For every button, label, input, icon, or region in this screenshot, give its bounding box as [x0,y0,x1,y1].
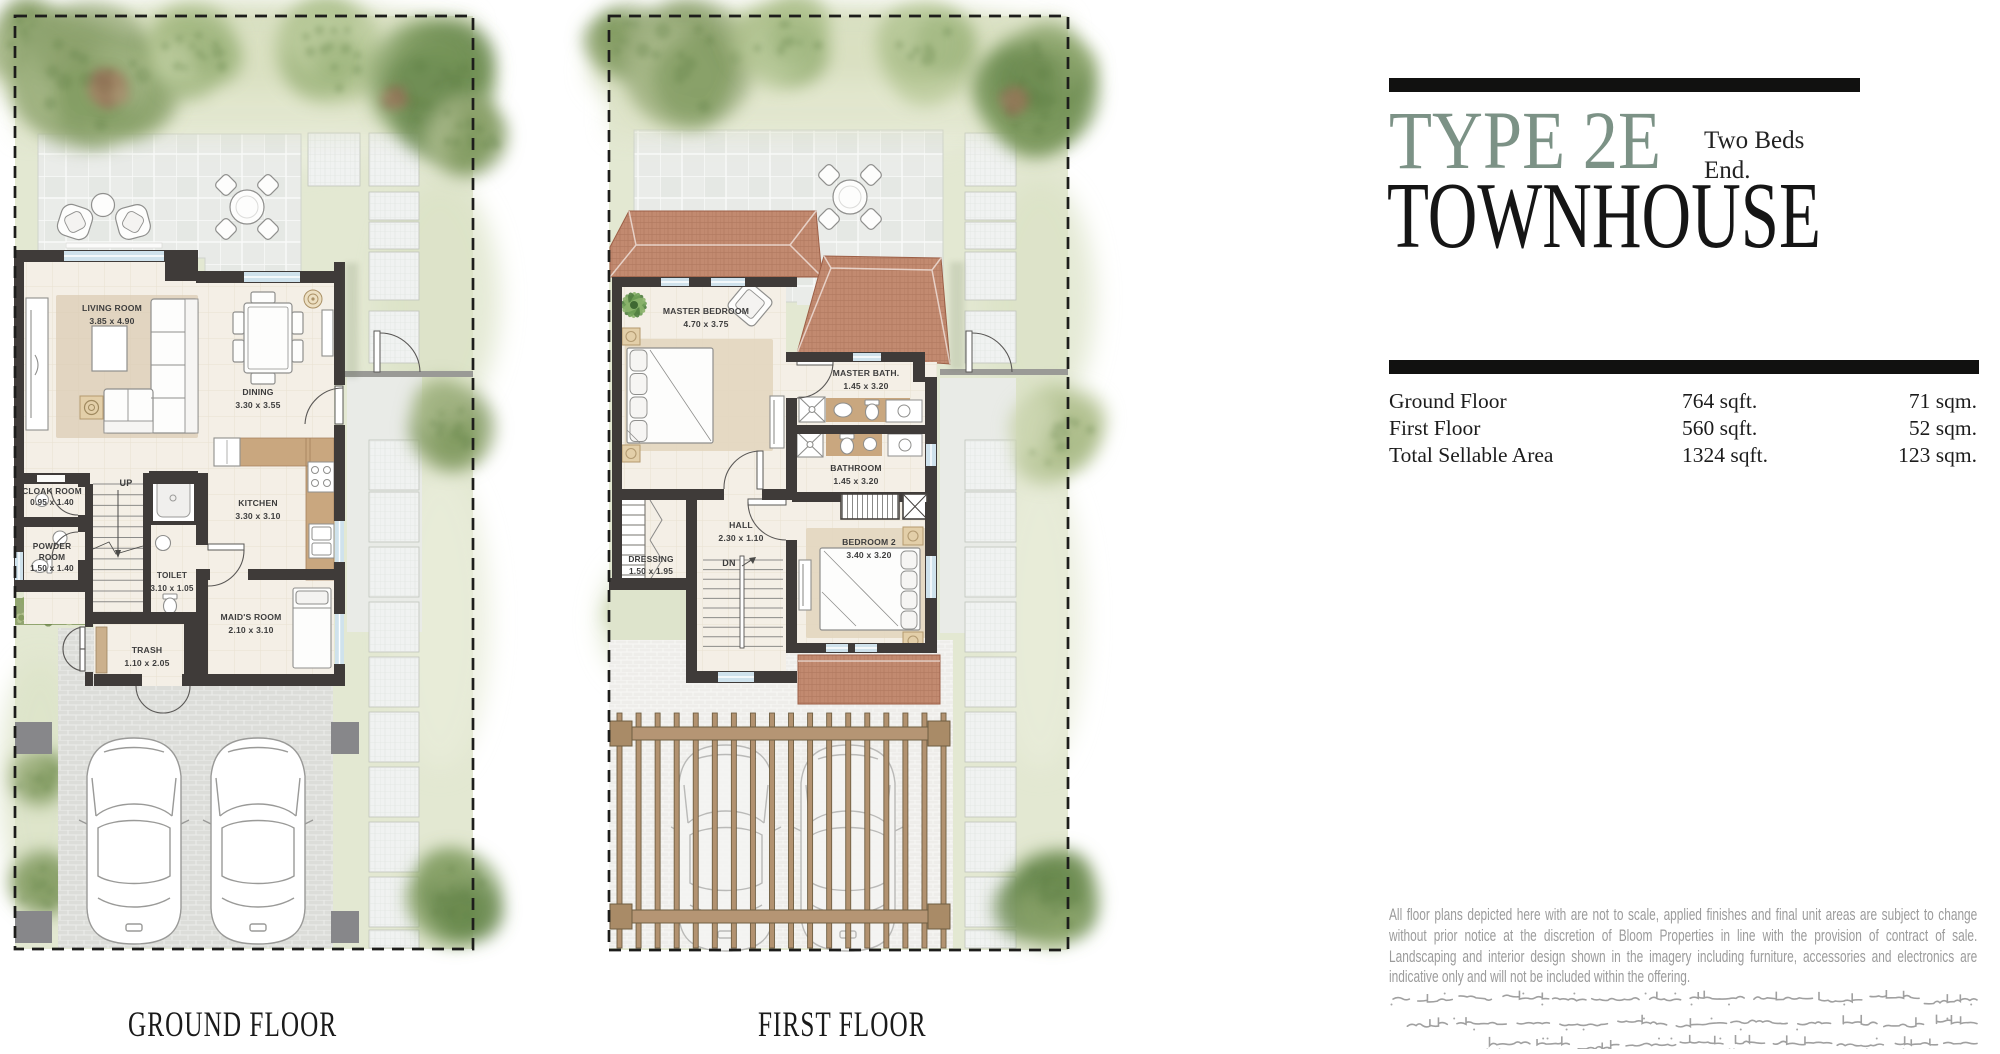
svg-text:1.45 x 3.20: 1.45 x 3.20 [843,381,888,391]
svg-text:1324 sqft.: 1324 sqft. [1682,443,1768,467]
svg-text:52 sqm.: 52 sqm. [1909,416,1977,440]
svg-text:BATHROOM: BATHROOM [830,463,882,473]
svg-text:1.10 x 2.05: 1.10 x 2.05 [124,658,169,668]
svg-text:LIVING ROOM: LIVING ROOM [82,303,142,313]
svg-text:GROUND FLOOR: GROUND FLOOR [128,1004,337,1045]
svg-text:3.85 x 4.90: 3.85 x 4.90 [89,316,134,326]
svg-text:First Floor: First Floor [1389,416,1480,440]
svg-text:0.95 x 1.40: 0.95 x 1.40 [30,497,74,507]
svg-text:DINING: DINING [242,387,273,397]
svg-text:DRESSING: DRESSING [628,554,673,564]
svg-text:HALL: HALL [729,520,753,530]
svg-text:3.30 x 3.55: 3.30 x 3.55 [235,400,280,410]
svg-text:1.50 x 1.95: 1.50 x 1.95 [629,566,673,576]
svg-text:123 sqm.: 123 sqm. [1898,443,1977,467]
svg-text:FIRST FLOOR: FIRST FLOOR [758,1004,927,1045]
svg-text:POWDER: POWDER [33,541,72,551]
svg-text:71 sqm.: 71 sqm. [1909,389,1977,413]
svg-text:3.40 x 3.20: 3.40 x 3.20 [846,550,891,560]
svg-text:MAID'S ROOM: MAID'S ROOM [220,612,281,622]
svg-text:3.30 x 3.10: 3.30 x 3.10 [235,511,280,521]
svg-text:UP: UP [120,478,133,488]
svg-text:CLOAK ROOM: CLOAK ROOM [22,486,82,496]
svg-text:Ground Floor: Ground Floor [1389,389,1507,413]
svg-text:MASTER BATH.: MASTER BATH. [833,368,900,378]
svg-text:DN: DN [722,558,735,568]
svg-text:2.30 x 1.10: 2.30 x 1.10 [718,533,763,543]
svg-text:1.50 x 1.40: 1.50 x 1.40 [30,563,74,573]
svg-text:KITCHEN: KITCHEN [238,498,278,508]
svg-text:TOILET: TOILET [157,571,187,580]
svg-text:560 sqft.: 560 sqft. [1682,416,1757,440]
svg-text:ROOM: ROOM [39,552,66,562]
svg-text:Total Sellable Area: Total Sellable Area [1389,443,1554,467]
svg-text:4.70 x 3.75: 4.70 x 3.75 [683,319,728,329]
svg-text:2.10 x 3.10: 2.10 x 3.10 [228,625,273,635]
svg-text:TRASH: TRASH [132,645,163,655]
svg-text:MASTER BEDROOM: MASTER BEDROOM [663,306,749,316]
svg-text:TOWNHOUSE: TOWNHOUSE [1387,164,1821,268]
svg-text:3.10 x 1.05: 3.10 x 1.05 [150,584,193,593]
svg-text:BEDROOM 2: BEDROOM 2 [842,537,896,547]
svg-text:Two Beds: Two Beds [1704,127,1804,154]
svg-text:764 sqft.: 764 sqft. [1682,389,1757,413]
svg-text:1.45 x 3.20: 1.45 x 3.20 [833,476,878,486]
